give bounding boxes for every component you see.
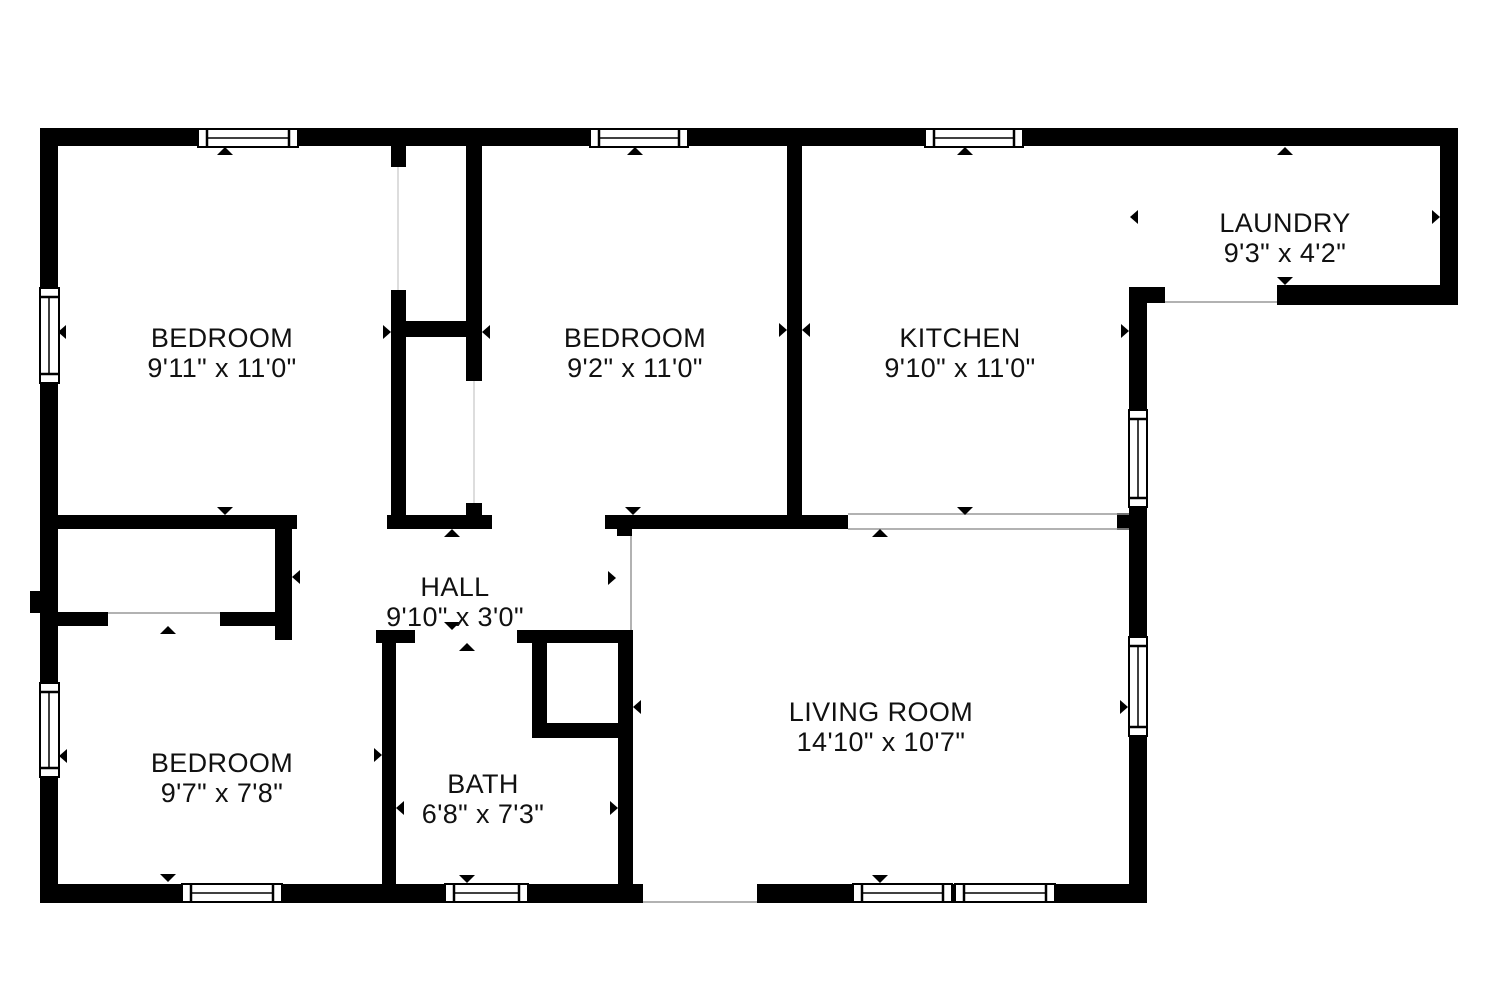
wall-bath-closet-bottom xyxy=(532,723,618,738)
room-name: BEDROOM xyxy=(564,323,706,353)
marker-right-bedroom1-icon xyxy=(383,325,391,339)
room-name: BATH xyxy=(422,769,544,799)
wall-hall-top-right xyxy=(605,515,848,529)
wall-bath-right xyxy=(618,630,633,884)
marker-left-laundry-icon xyxy=(1130,210,1138,224)
window-bedroom1-left xyxy=(40,288,59,383)
marker-left-bedroom2-icon xyxy=(482,325,490,339)
window-kitchen-top xyxy=(925,129,1023,147)
marker-right-laundry-icon xyxy=(1432,210,1440,224)
window-bedroom3-bottom xyxy=(182,884,282,902)
room-label-laundry: LAUNDRY 9'3" x 4'2" xyxy=(1219,208,1350,268)
marker-down-laundry-icon xyxy=(1277,277,1293,285)
floor-plan: BEDROOM 9'11" x 11'0" BEDROOM 9'2" x 11'… xyxy=(0,0,1500,996)
window-bath-bottom xyxy=(445,884,528,902)
marker-left-bedroom3-icon xyxy=(59,749,67,763)
marker-left-hall-icon xyxy=(292,570,300,584)
marker-up-hall-icon xyxy=(444,529,460,537)
marker-up-kitchen-icon xyxy=(957,147,973,155)
wall-hall-top-left xyxy=(387,515,492,529)
room-label-bath: BATH 6'8" x 7'3" xyxy=(422,769,544,829)
wall-kitchen-right-tab xyxy=(1117,513,1129,530)
window-living-right xyxy=(1129,637,1147,736)
wall-laundry-bottom-tab xyxy=(1129,287,1165,303)
wall-bath-left xyxy=(382,643,396,884)
marker-down-bath-icon xyxy=(459,875,475,883)
wall-exterior-bottom-left xyxy=(40,884,643,903)
wall-bedroom1-right-stub xyxy=(391,146,406,167)
wall-closet-divider xyxy=(398,321,466,337)
wall-bath-top-right xyxy=(517,630,633,643)
room-label-hall: HALL 9'10" x 3'0" xyxy=(386,572,524,632)
room-name: BEDROOM xyxy=(151,748,293,778)
room-label-living-room: LIVING ROOM 14'10" x 10'7" xyxy=(789,697,973,757)
wall-bath-closet-left xyxy=(532,643,547,723)
room-dims: 9'7" x 7'8" xyxy=(151,778,293,808)
window-bedroom1-top xyxy=(198,129,298,147)
marker-up-bath-icon xyxy=(459,643,475,651)
wall-bedroom1-bottom xyxy=(40,515,297,529)
marker-up-bedroom1-icon xyxy=(217,147,233,155)
room-name: HALL xyxy=(386,572,524,602)
marker-down-bedroom3-icon xyxy=(160,874,176,882)
room-name: LAUNDRY xyxy=(1219,208,1350,238)
marker-up-bedroom3-icon xyxy=(160,626,176,634)
marker-up-bedroom2-icon xyxy=(627,147,643,155)
window-bedroom3-left xyxy=(40,683,59,777)
room-label-bedroom-1: BEDROOM 9'11" x 11'0" xyxy=(147,323,296,383)
room-dims: 9'10" x 3'0" xyxy=(386,602,524,632)
marker-left-living-icon xyxy=(633,700,641,714)
wall-bedroom2-kitchen xyxy=(787,146,802,529)
marker-left-kitchen-icon xyxy=(802,323,810,337)
marker-down-living-icon xyxy=(872,875,888,883)
room-name: KITCHEN xyxy=(884,323,1035,353)
marker-down-bedroom1-icon xyxy=(217,507,233,515)
marker-down-bedroom2-icon xyxy=(625,507,641,515)
room-dims: 9'10" x 11'0" xyxy=(884,353,1035,383)
window-living-bottom-left xyxy=(853,884,952,902)
window-bedroom2-top xyxy=(590,129,688,147)
room-dims: 9'2" x 11'0" xyxy=(564,353,706,383)
marker-right-bedroom2-icon xyxy=(779,323,787,337)
marker-right-bedroom3-icon xyxy=(374,748,382,762)
wall-closet-right-upper xyxy=(466,146,482,381)
wall-closet-right-tab xyxy=(466,503,482,515)
marker-right-bath-icon xyxy=(610,801,618,815)
window-living-bottom-right xyxy=(955,884,1055,902)
wall-hall-top-right-tab xyxy=(617,529,632,536)
marker-right-living-icon xyxy=(1120,700,1128,714)
window-kitchen-right xyxy=(1129,410,1147,507)
room-label-kitchen: KITCHEN 9'10" x 11'0" xyxy=(884,323,1035,383)
wall-exterior-right-lower xyxy=(1129,287,1147,903)
marker-right-kitchen-icon xyxy=(1121,324,1129,338)
room-dims: 9'3" x 4'2" xyxy=(1219,238,1350,268)
wall-closet3-right xyxy=(275,529,292,640)
marker-left-bath-icon xyxy=(396,801,404,815)
room-dims: 14'10" x 10'7" xyxy=(789,727,973,757)
room-label-bedroom-2: BEDROOM 9'2" x 11'0" xyxy=(564,323,706,383)
wall-laundry-bottom xyxy=(1277,285,1458,305)
marker-up-laundry-icon xyxy=(1277,147,1293,155)
wall-left-chimney-bump xyxy=(30,591,42,613)
room-name: LIVING ROOM xyxy=(789,697,973,727)
floor-plan-graphics xyxy=(0,0,1500,996)
marker-up-living-icon xyxy=(872,529,888,537)
marker-right-hall-icon xyxy=(608,571,616,585)
room-label-bedroom-3: BEDROOM 9'7" x 7'8" xyxy=(151,748,293,808)
wall-closet3-bottom-left xyxy=(58,612,108,626)
room-name: BEDROOM xyxy=(147,323,296,353)
wall-exterior-right-laundry xyxy=(1440,128,1458,305)
room-dims: 6'8" x 7'3" xyxy=(422,799,544,829)
room-dims: 9'11" x 11'0" xyxy=(147,353,296,383)
